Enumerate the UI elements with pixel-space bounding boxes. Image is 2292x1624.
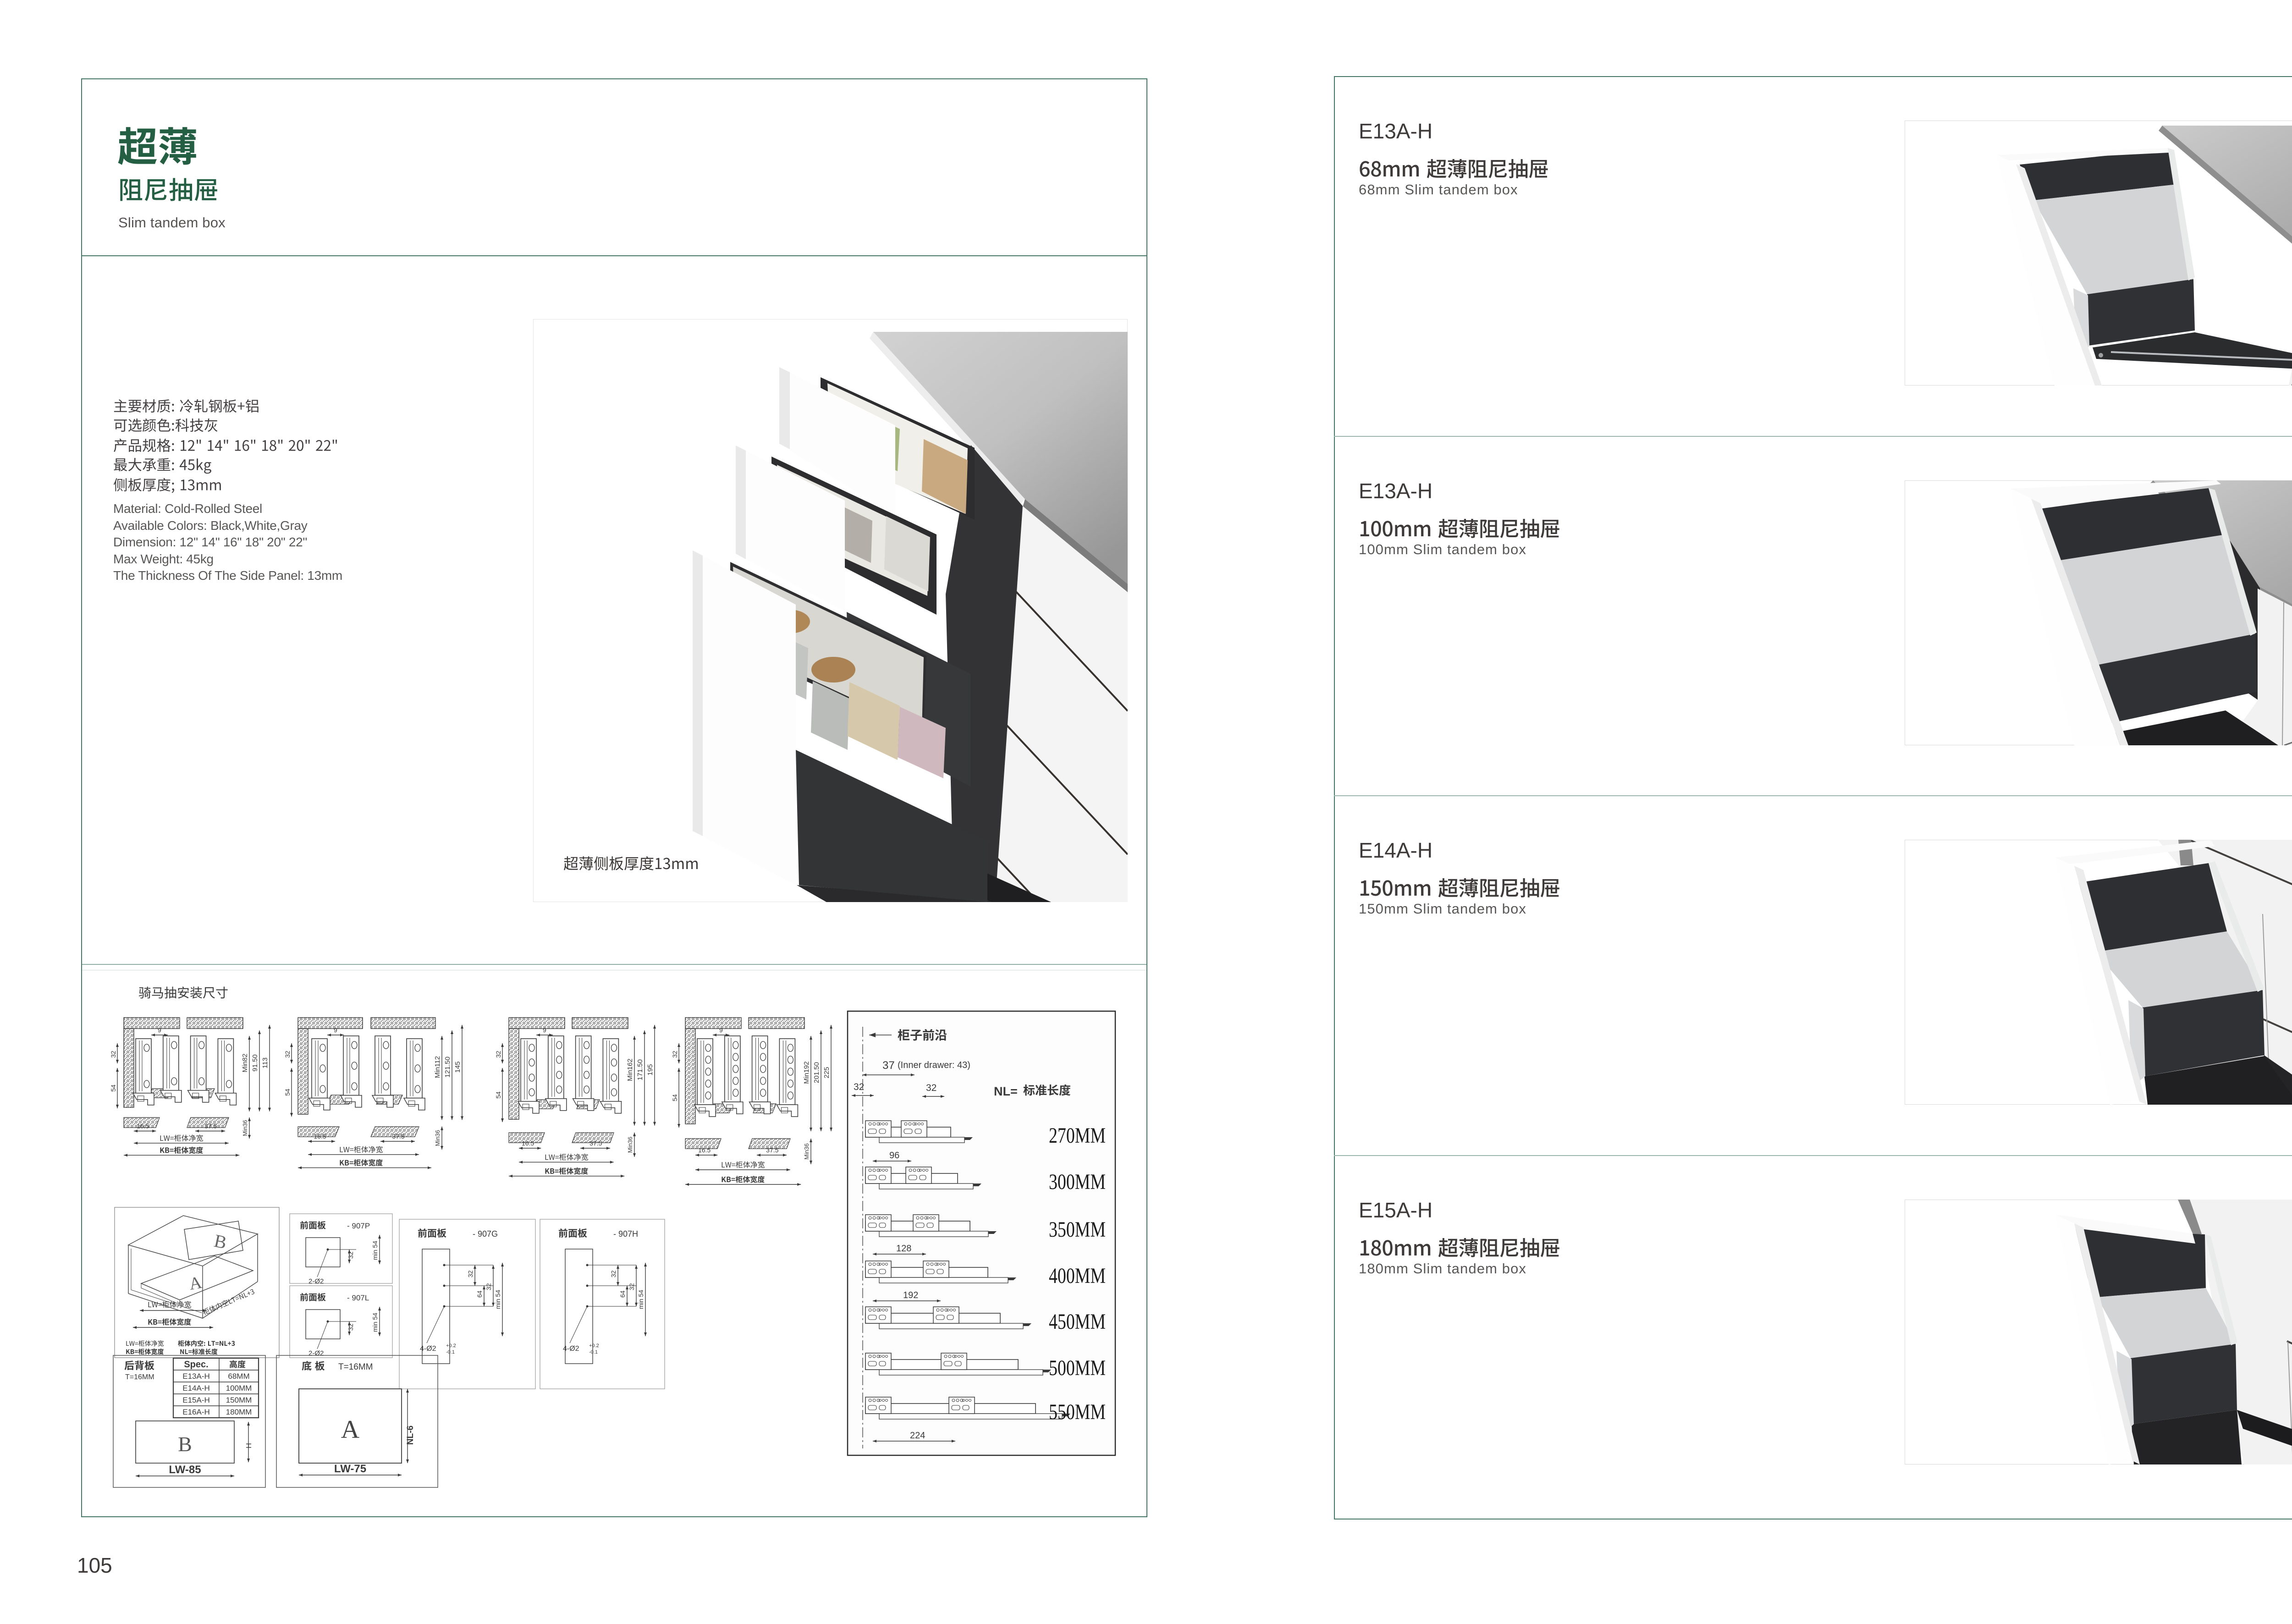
svg-text:100MM: 100MM bbox=[226, 1384, 252, 1393]
svg-text:64: 64 bbox=[476, 1290, 483, 1298]
svg-text:- 907H: - 907H bbox=[613, 1229, 638, 1239]
svg-text:192: 192 bbox=[903, 1290, 918, 1300]
svg-text:2-Ø2: 2-Ø2 bbox=[309, 1349, 324, 1357]
svg-text:32: 32 bbox=[495, 1051, 502, 1058]
svg-text:300MM: 300MM bbox=[1049, 1170, 1106, 1194]
svg-text:E14A-H: E14A-H bbox=[182, 1384, 210, 1393]
svg-text:225: 225 bbox=[823, 1067, 831, 1078]
svg-text:201.50: 201.50 bbox=[813, 1062, 821, 1083]
svg-text:37.5: 37.5 bbox=[392, 1133, 404, 1140]
svg-text:Min192: Min192 bbox=[803, 1061, 810, 1084]
svg-text:145: 145 bbox=[454, 1061, 462, 1073]
svg-text:37.5: 37.5 bbox=[766, 1146, 778, 1154]
svg-text:E15A-H: E15A-H bbox=[182, 1396, 210, 1404]
svg-text:9: 9 bbox=[719, 1026, 723, 1034]
svg-text:(Inner drawer: 43): (Inner drawer: 43) bbox=[898, 1060, 970, 1070]
svg-text:9: 9 bbox=[543, 1026, 546, 1034]
svg-text:121.50: 121.50 bbox=[444, 1057, 452, 1078]
svg-text:37.5: 37.5 bbox=[204, 1123, 217, 1130]
svg-text:LW-85: LW-85 bbox=[169, 1464, 201, 1476]
svg-text:16.5: 16.5 bbox=[137, 1123, 149, 1130]
svg-text:min 54: min 54 bbox=[494, 1290, 501, 1309]
svg-text:4-Ø2: 4-Ø2 bbox=[420, 1345, 436, 1353]
svg-text:32: 32 bbox=[110, 1051, 117, 1058]
svg-text:min 54: min 54 bbox=[637, 1290, 645, 1309]
svg-text:113: 113 bbox=[261, 1057, 269, 1068]
svg-text:32: 32 bbox=[284, 1051, 291, 1058]
svg-text:37: 37 bbox=[882, 1059, 895, 1072]
svg-text:16.5: 16.5 bbox=[698, 1146, 711, 1154]
svg-text:32: 32 bbox=[610, 1270, 617, 1277]
svg-text:A: A bbox=[341, 1415, 360, 1444]
svg-text:Spec.: Spec. bbox=[184, 1360, 208, 1370]
svg-text:32: 32 bbox=[347, 1323, 354, 1331]
svg-text:Min82: Min82 bbox=[241, 1054, 249, 1073]
svg-text:min 54: min 54 bbox=[371, 1313, 379, 1332]
svg-text:T=16MM: T=16MM bbox=[125, 1373, 154, 1381]
svg-text:9: 9 bbox=[334, 1026, 337, 1034]
svg-text:NL-6: NL-6 bbox=[406, 1426, 415, 1445]
svg-text:32: 32 bbox=[671, 1051, 678, 1058]
svg-text:32: 32 bbox=[347, 1251, 354, 1259]
svg-text:32: 32 bbox=[854, 1082, 864, 1092]
svg-text:450MM: 450MM bbox=[1049, 1310, 1106, 1334]
svg-text:-0.1: -0.1 bbox=[446, 1349, 455, 1355]
svg-text:4-Ø2: 4-Ø2 bbox=[563, 1345, 579, 1353]
svg-text:54: 54 bbox=[110, 1085, 117, 1092]
svg-text:224: 224 bbox=[910, 1431, 925, 1441]
svg-text:54: 54 bbox=[284, 1089, 291, 1096]
svg-text:-0.1: -0.1 bbox=[589, 1349, 598, 1355]
svg-text:54: 54 bbox=[671, 1094, 678, 1101]
svg-text:Min36: Min36 bbox=[627, 1137, 634, 1153]
svg-text:195: 195 bbox=[646, 1064, 654, 1075]
svg-text:H: H bbox=[245, 1443, 253, 1448]
svg-text:B: B bbox=[178, 1432, 192, 1456]
svg-text:T=16MM: T=16MM bbox=[338, 1362, 373, 1372]
svg-text:+0.2: +0.2 bbox=[589, 1343, 599, 1349]
svg-text:E16A-H: E16A-H bbox=[182, 1408, 210, 1416]
svg-text:LW-75: LW-75 bbox=[334, 1463, 366, 1475]
svg-text:Min36: Min36 bbox=[434, 1130, 441, 1146]
svg-text:64: 64 bbox=[619, 1290, 626, 1298]
svg-text:Min112: Min112 bbox=[434, 1056, 441, 1078]
svg-text:32: 32 bbox=[485, 1283, 492, 1290]
svg-text:96: 96 bbox=[889, 1151, 899, 1161]
svg-text:9: 9 bbox=[158, 1026, 161, 1034]
svg-text:171.50: 171.50 bbox=[636, 1059, 644, 1080]
svg-text:180MM: 180MM bbox=[226, 1408, 252, 1416]
svg-text:- 907G: - 907G bbox=[473, 1229, 498, 1239]
svg-text:Min36: Min36 bbox=[803, 1143, 810, 1159]
svg-text:16.5: 16.5 bbox=[522, 1140, 534, 1147]
svg-text:400MM: 400MM bbox=[1049, 1264, 1106, 1288]
svg-text:32: 32 bbox=[467, 1270, 474, 1277]
svg-text:Min162: Min162 bbox=[626, 1058, 634, 1081]
svg-text:32: 32 bbox=[926, 1083, 937, 1093]
svg-text:37.5: 37.5 bbox=[590, 1140, 602, 1147]
svg-text:68MM: 68MM bbox=[228, 1372, 249, 1381]
svg-text:16.5: 16.5 bbox=[314, 1133, 326, 1140]
svg-text:550MM: 550MM bbox=[1049, 1400, 1106, 1424]
svg-text:91.50: 91.50 bbox=[251, 1054, 259, 1072]
svg-text:+0.2: +0.2 bbox=[446, 1343, 456, 1349]
svg-text:150MM: 150MM bbox=[226, 1396, 252, 1404]
svg-text:500MM: 500MM bbox=[1049, 1356, 1106, 1380]
svg-text:54: 54 bbox=[495, 1091, 502, 1099]
svg-text:Min36: Min36 bbox=[242, 1120, 248, 1136]
svg-text:128: 128 bbox=[896, 1244, 911, 1254]
svg-text:E13A-H: E13A-H bbox=[182, 1372, 210, 1381]
svg-text:32: 32 bbox=[628, 1283, 635, 1290]
svg-text:2-Ø2: 2-Ø2 bbox=[309, 1277, 324, 1285]
svg-text:min 54: min 54 bbox=[371, 1241, 379, 1260]
svg-text:270MM: 270MM bbox=[1049, 1123, 1106, 1148]
svg-text:- 907P: - 907P bbox=[347, 1222, 370, 1230]
svg-text:B: B bbox=[212, 1230, 228, 1253]
svg-text:- 907L: - 907L bbox=[347, 1294, 369, 1302]
svg-text:350MM: 350MM bbox=[1049, 1217, 1106, 1242]
svg-text:A: A bbox=[187, 1273, 204, 1294]
svg-text:NL=: NL= bbox=[994, 1085, 1018, 1098]
